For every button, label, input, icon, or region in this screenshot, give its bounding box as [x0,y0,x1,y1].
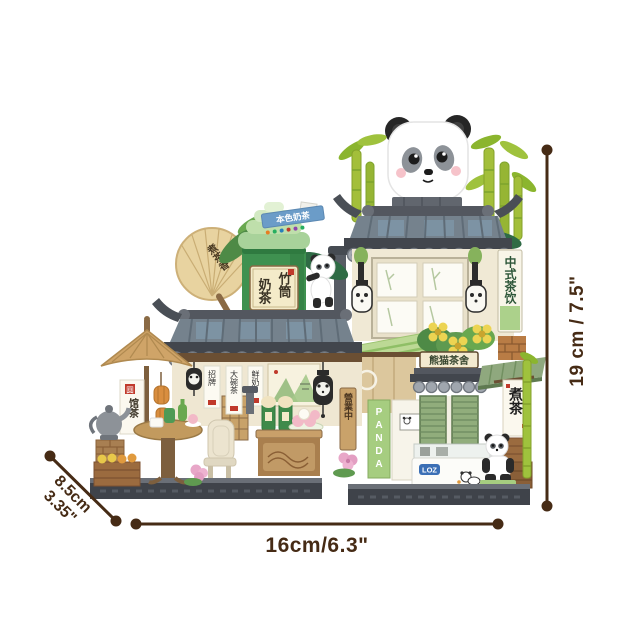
cup-label-right-text: 竹筒 [277,271,293,299]
tower-side-sign: 中式茶饮 [498,250,522,332]
open-sign: 營業中 [340,388,356,450]
boil-tea-banner-text: 煮茶 [508,386,524,416]
product-photo: 中式茶饮 [0,0,630,630]
white-chair [204,420,236,482]
awning-plaque-text: 熊猫茶舍 [429,354,470,367]
freezer-logo-text: LOZ [422,466,437,475]
tower-base [348,484,530,505]
open-sign-text: 營業中 [343,392,354,421]
hanging-banner-text: 招牌 [208,369,217,387]
green-shutters [420,396,478,444]
stall-seal-text: 圆 [126,386,134,395]
width-dimension-label: 16cm/6.3" [217,534,417,558]
panda-door-strip: PANDA [368,400,390,478]
tower-side-sign-text: 中式茶饮 [503,255,517,305]
mural-panel [268,364,320,406]
counter [256,430,322,476]
shopfront: 招牌 大碗茶 鲜奶 [170,353,362,482]
hanging-banner: 招牌 [204,366,220,408]
height-dimension-line [542,145,553,512]
panda-head [385,115,471,210]
hanging-banner-text: 大碗茶 [230,369,239,394]
right-tower: 中式茶饮 [328,115,546,505]
cup-label-left-text: 奶茶 [257,277,273,305]
hanging-banner: 大碗茶 [226,366,242,414]
hanging-banner-text: 鲜奶 [251,369,260,387]
width-dimension-line [131,519,504,530]
pink-flower [333,453,358,478]
freezer-counter: LOZ [412,444,490,490]
panda-door-strip-text: PANDA [374,407,385,472]
height-dimension-label: 19 cm / 7.5" [567,270,589,392]
roof-tile-ends [414,382,487,393]
awning-plaque: 熊猫茶舍 [420,352,478,368]
